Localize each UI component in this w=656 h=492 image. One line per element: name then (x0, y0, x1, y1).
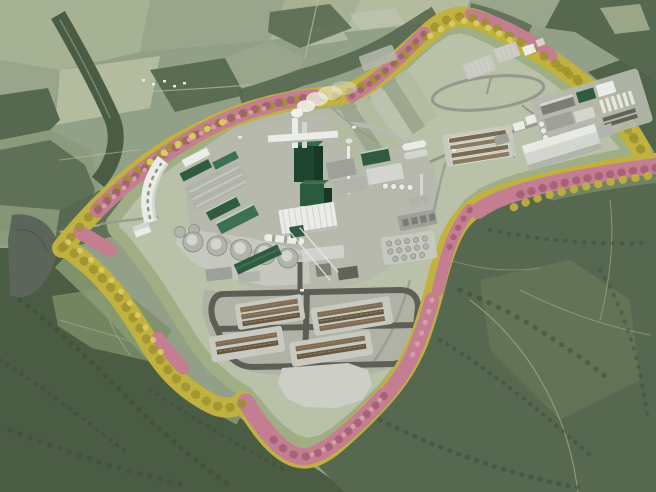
boiler-tower (294, 146, 314, 182)
main-stack (292, 118, 298, 148)
aerial-render-canvas (0, 0, 656, 492)
pulp-mill-aerial-render (0, 0, 656, 492)
boiler-lower-block (300, 184, 324, 206)
